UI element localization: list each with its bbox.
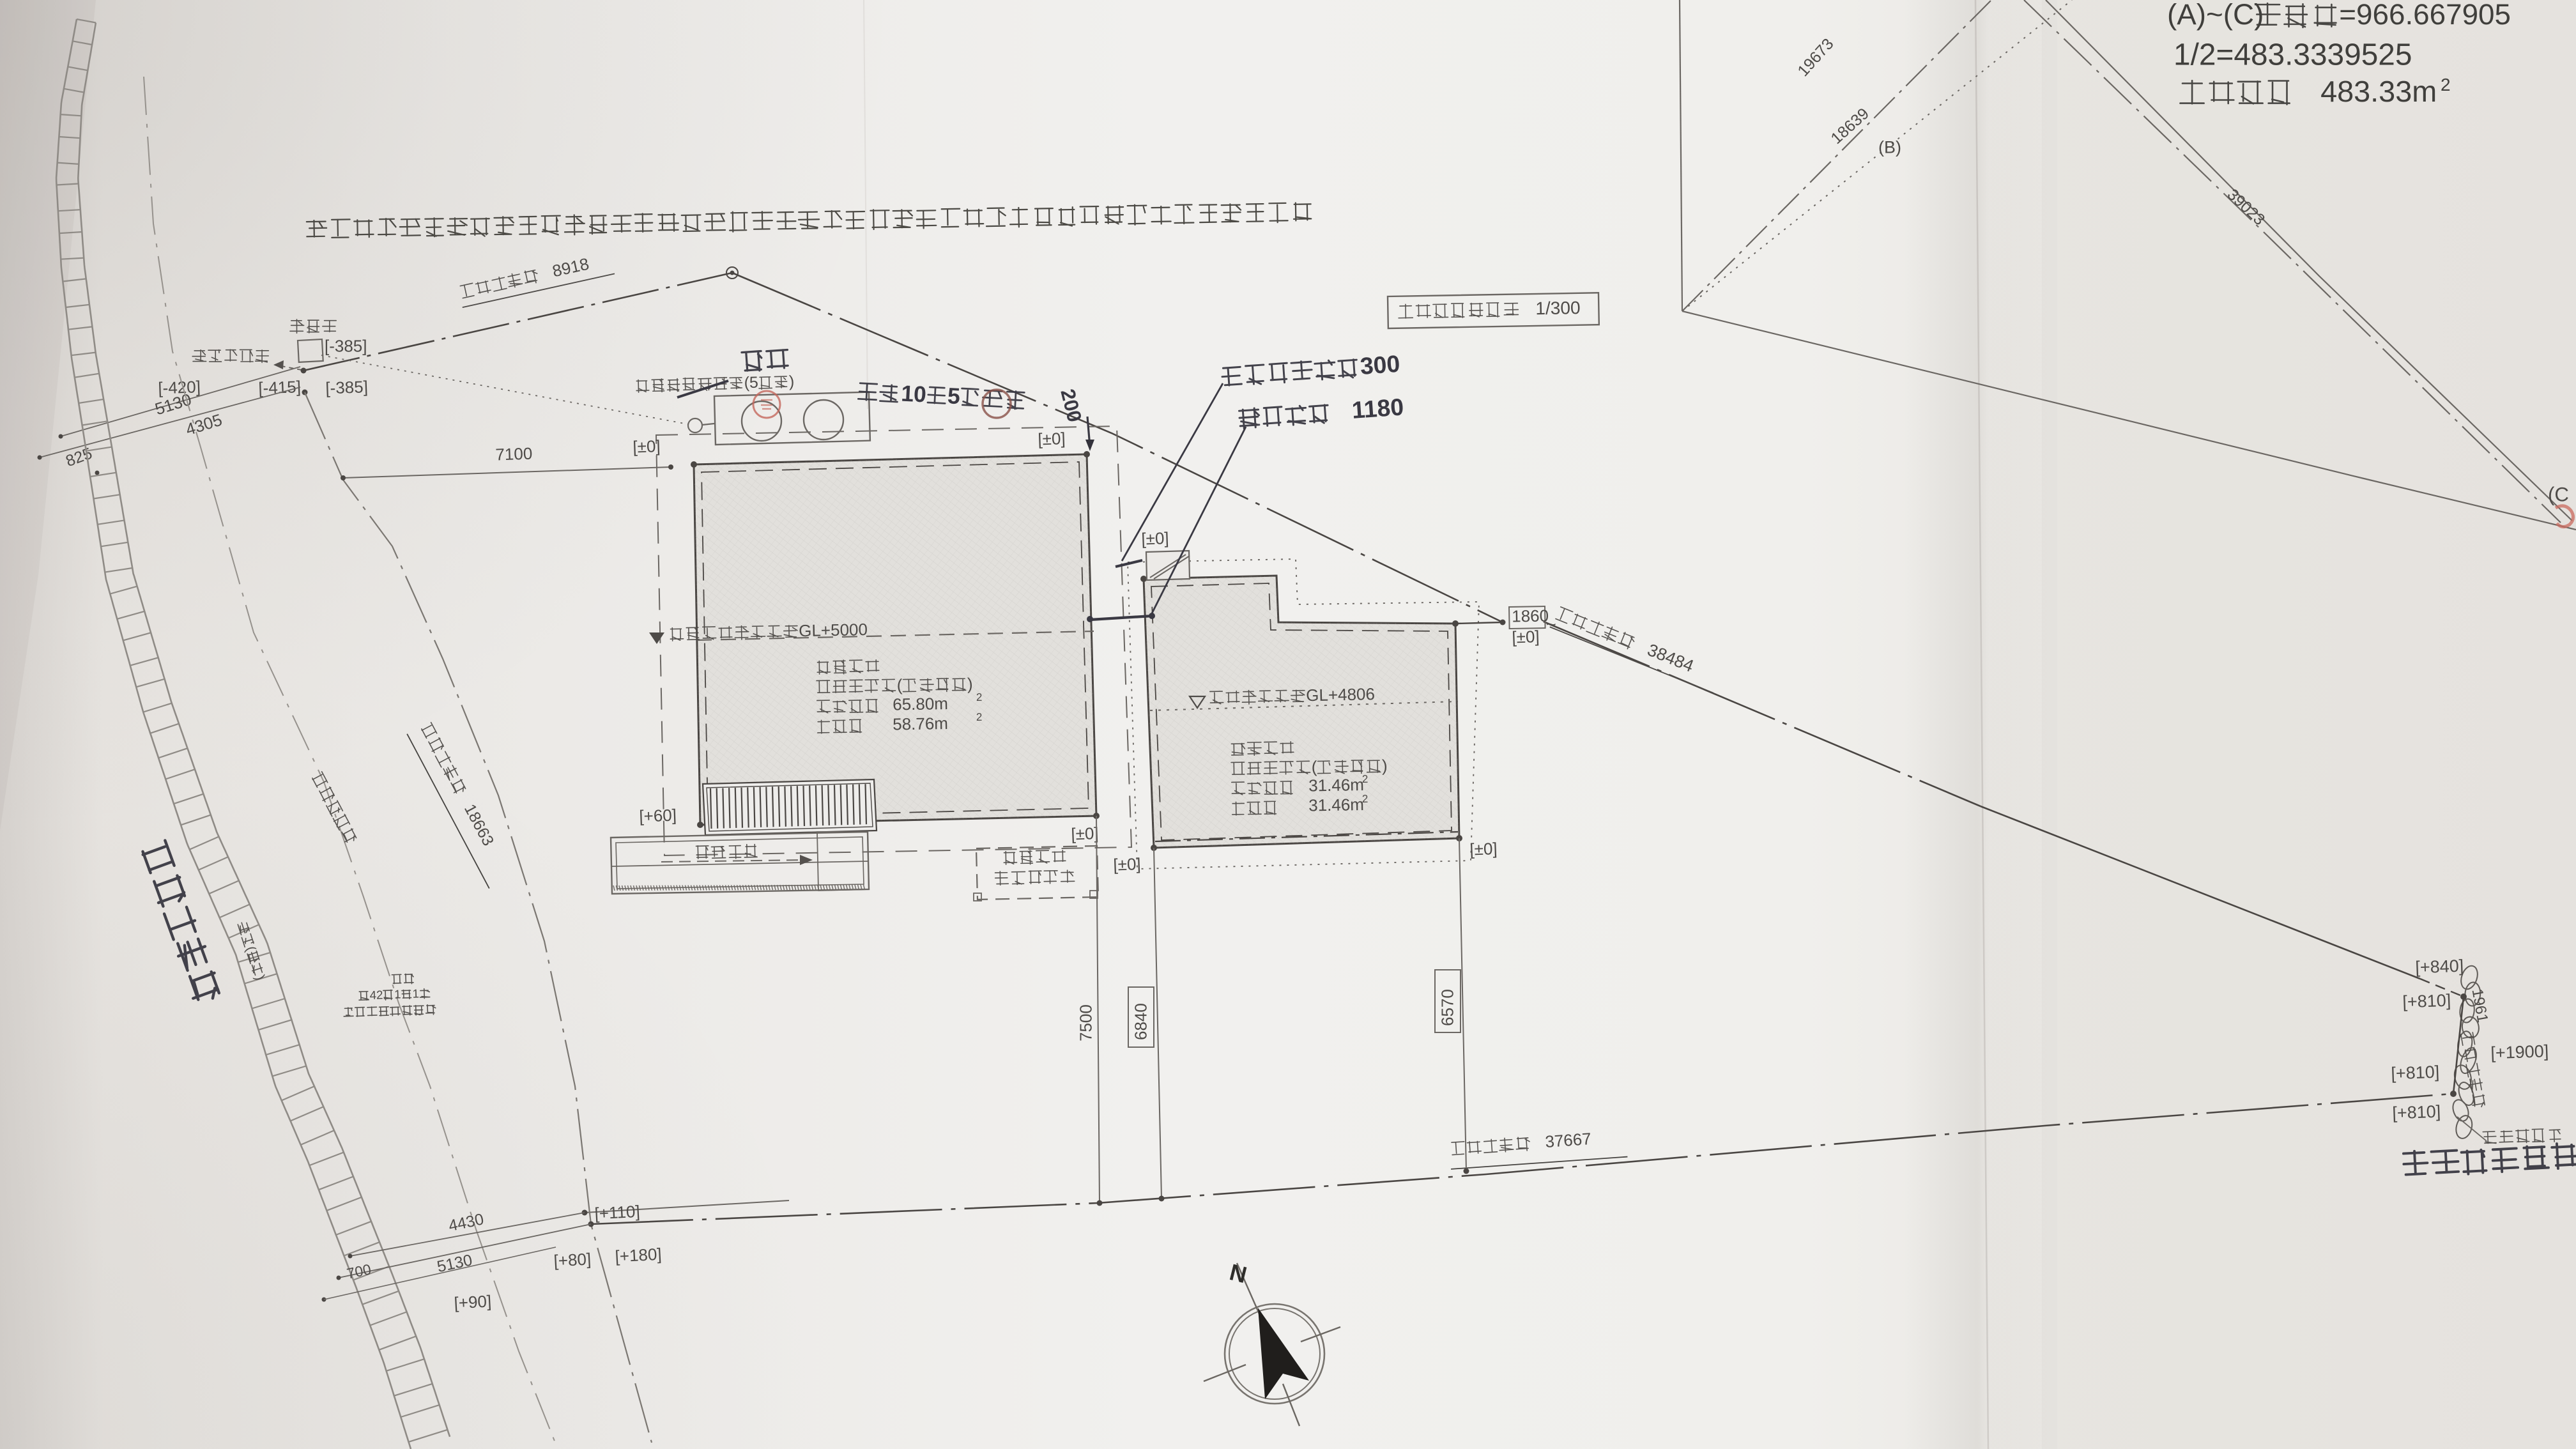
svg-text:6570: 6570 <box>1438 989 1457 1026</box>
svg-text:): ) <box>1382 756 1388 775</box>
svg-text:1/2=483.3339525: 1/2=483.3339525 <box>2173 38 2412 72</box>
svg-text:[±0]: [±0] <box>1071 824 1099 843</box>
svg-text:7500: 7500 <box>1077 1004 1096 1041</box>
svg-text:10: 10 <box>900 381 926 408</box>
svg-text:(: ( <box>1311 757 1317 776</box>
svg-text:[-385]: [-385] <box>325 337 367 356</box>
svg-text:[-415]: [-415] <box>258 377 302 397</box>
svg-text:[±0]: [±0] <box>1038 429 1066 448</box>
svg-text:[+60]: [+60] <box>639 805 677 825</box>
svg-text:[+80]: [+80] <box>553 1249 592 1270</box>
svg-text:1860: 1860 <box>1512 606 1549 625</box>
svg-text:GL+4806: GL+4806 <box>1306 684 1375 705</box>
svg-text:[±0]: [±0] <box>1141 528 1169 548</box>
svg-text:[±0]: [±0] <box>1512 627 1540 647</box>
svg-text:37667: 37667 <box>1544 1129 1591 1151</box>
svg-text:[+840]: [+840] <box>2415 956 2464 977</box>
svg-text:[±0]: [±0] <box>1113 854 1141 874</box>
svg-text:[+110]: [+110] <box>594 1202 641 1223</box>
svg-text:[-385]: [-385] <box>325 377 369 397</box>
svg-text:[+1900]: [+1900] <box>2490 1041 2549 1062</box>
svg-text:2: 2 <box>1362 773 1368 785</box>
svg-text:[+810]: [+810] <box>2402 991 2451 1012</box>
svg-text:[±0]: [±0] <box>1469 839 1498 859</box>
svg-text:58.76m: 58.76m <box>893 714 948 734</box>
svg-text:(B): (B) <box>1878 137 1901 157</box>
svg-text:5: 5 <box>947 383 961 409</box>
svg-text:1: 1 <box>394 987 401 1000</box>
svg-text:=966.667905: =966.667905 <box>2339 0 2511 31</box>
svg-text:7100: 7100 <box>495 443 533 464</box>
svg-text:2: 2 <box>1362 793 1368 805</box>
svg-text:): ) <box>789 372 795 390</box>
svg-text:[±0]: [±0] <box>632 436 661 456</box>
svg-text:31.46m: 31.46m <box>1308 795 1364 815</box>
svg-text:2: 2 <box>976 711 983 723</box>
svg-text:483.33m: 483.33m <box>2320 75 2437 108</box>
svg-text:[+810]: [+810] <box>2392 1102 2441 1123</box>
svg-text:31.46m: 31.46m <box>1308 775 1364 795</box>
svg-text:): ) <box>967 674 973 693</box>
svg-text:42: 42 <box>369 988 383 1002</box>
svg-text:2: 2 <box>976 691 983 703</box>
svg-text:(5: (5 <box>744 374 758 392</box>
svg-text:GL+5000: GL+5000 <box>799 620 868 640</box>
svg-text:(: ( <box>896 675 903 694</box>
svg-text:2: 2 <box>2441 75 2451 95</box>
svg-text:65.80m: 65.80m <box>893 694 948 714</box>
svg-text:1180: 1180 <box>1351 393 1405 424</box>
svg-text:6840: 6840 <box>1131 1003 1151 1040</box>
svg-text:(C: (C <box>2548 484 2569 506</box>
svg-text:1/300: 1/300 <box>1535 298 1581 318</box>
svg-text:~: ~ <box>1546 615 1556 634</box>
svg-text:[+810]: [+810] <box>2391 1062 2440 1084</box>
svg-text:1: 1 <box>412 986 419 1000</box>
svg-text:[+90]: [+90] <box>454 1291 492 1312</box>
svg-text:(A)~(C): (A)~(C) <box>2167 0 2264 31</box>
svg-text:[+180]: [+180] <box>615 1245 662 1266</box>
svg-text:300: 300 <box>1359 350 1400 379</box>
